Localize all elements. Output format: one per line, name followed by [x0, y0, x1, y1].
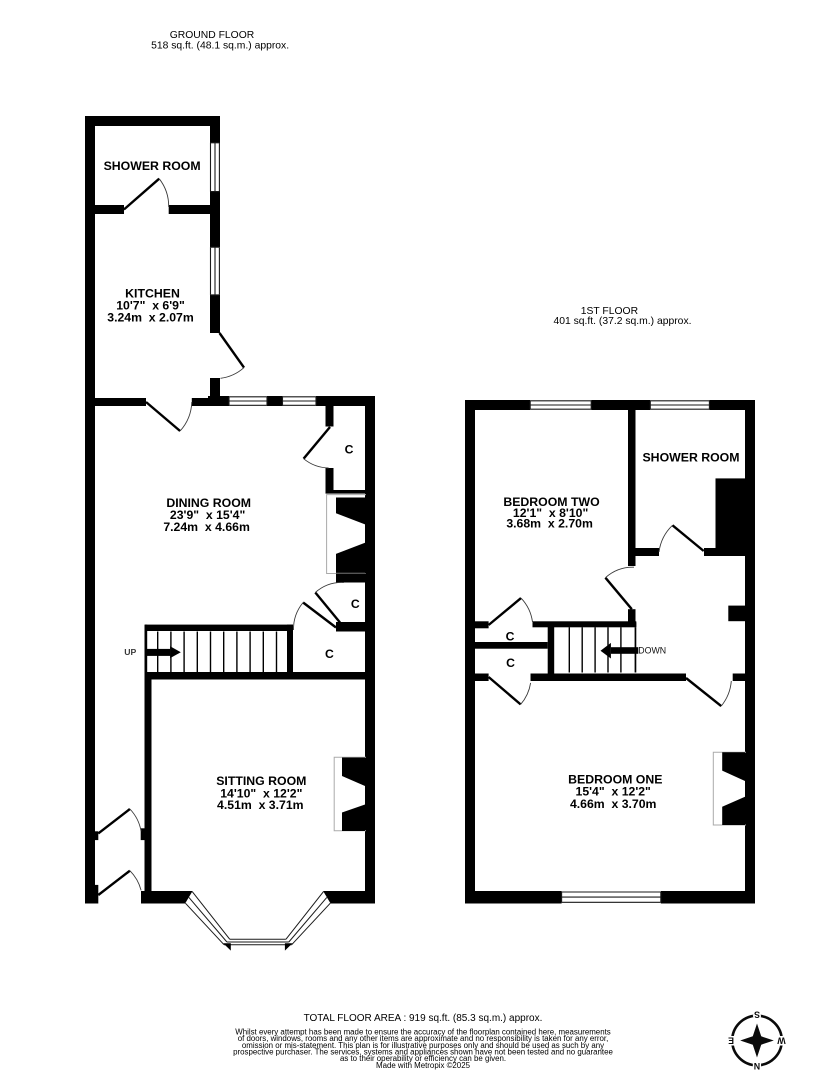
svg-text:518 sq.ft. (48.1 sq.m.) approx: 518 sq.ft. (48.1 sq.m.) approx. — [151, 40, 289, 51]
svg-text:UP: UP — [124, 647, 136, 657]
svg-text:C: C — [351, 597, 360, 611]
svg-text:C: C — [506, 630, 515, 644]
svg-text:401 sq.ft. (37.2 sq.m.) approx: 401 sq.ft. (37.2 sq.m.) approx. — [554, 316, 692, 327]
svg-text:SHOWER ROOM: SHOWER ROOM — [104, 159, 201, 173]
svg-text:3.24m x 2.07m: 3.24m x 2.07m — [107, 311, 194, 325]
svg-text:3.68m x 2.70m: 3.68m x 2.70m — [506, 516, 593, 530]
svg-text:C: C — [506, 656, 515, 670]
svg-text:E: E — [728, 1036, 734, 1046]
svg-text:N: N — [754, 1061, 760, 1071]
svg-text:SHOWER ROOM: SHOWER ROOM — [642, 451, 739, 465]
svg-text:C: C — [325, 647, 334, 661]
svg-text:C: C — [345, 442, 354, 456]
svg-text:4.51m x 3.71m: 4.51m x 3.71m — [217, 798, 304, 812]
svg-text:4.66m x 3.70m: 4.66m x 3.70m — [570, 797, 657, 811]
svg-text:W: W — [777, 1036, 786, 1046]
svg-text:7.24m x 4.66m: 7.24m x 4.66m — [163, 520, 250, 534]
svg-text:TOTAL FLOOR AREA : 919 sq.ft.: TOTAL FLOOR AREA : 919 sq.ft. (85.3 sq.m… — [304, 1013, 543, 1024]
svg-text:S: S — [754, 1009, 760, 1019]
svg-text:DOWN: DOWN — [638, 646, 666, 656]
svg-text:Made with Metropix ©2025: Made with Metropix ©2025 — [376, 1061, 471, 1070]
